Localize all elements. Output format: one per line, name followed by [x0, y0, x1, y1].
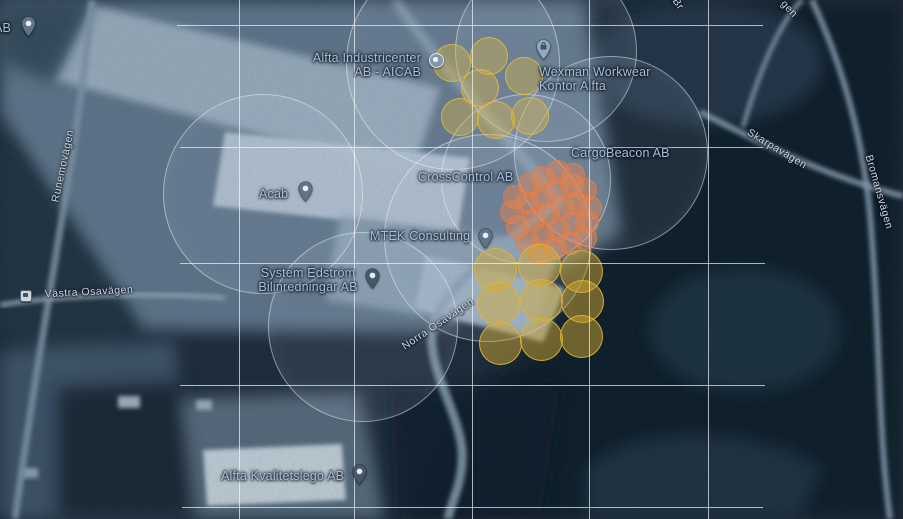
- place-label-system-edstrom[interactable]: System EdströmBilinredningar AB: [258, 267, 357, 294]
- place-label-line: System Edström: [258, 267, 357, 281]
- place-label-crosscontrol[interactable]: CrossControl AB: [418, 171, 513, 185]
- place-label-line: Kontor Alfta: [539, 80, 651, 94]
- place-label-alfta-kvalitetslego[interactable]: Alfta Kvalitetslego AB: [221, 470, 344, 484]
- place-label-mtek-consulting[interactable]: MTEK Consulting: [370, 230, 470, 244]
- label-layer: ABAlfta IndustricenterAB - AICABWexman W…: [0, 0, 903, 519]
- place-label-line: MTEK Consulting: [370, 230, 470, 244]
- place-label-line: Alfta Industricenter: [313, 52, 421, 66]
- road-label-skarpavagen: Skarpavägen: [745, 127, 809, 172]
- place-label-line: Bilinredningar AB: [258, 281, 357, 295]
- road-label-partial-gen: gen: [778, 0, 800, 20]
- place-label-alfta-industricenter[interactable]: Alfta IndustricenterAB - AICAB: [313, 52, 421, 79]
- place-label-line: AB - AICAB: [313, 66, 421, 80]
- place-label-line: CrossControl AB: [418, 171, 513, 185]
- place-label-line: AB: [0, 22, 11, 36]
- place-label-line: CargoBeacon AB: [571, 147, 670, 161]
- place-label-wexman-workwear[interactable]: Wexman WorkwearKontor Alfta: [539, 66, 651, 93]
- road-label-vastra-osavagen: Västra Osavägen: [44, 284, 133, 301]
- road-label-runemovagen: Runemovägen: [49, 129, 76, 204]
- place-label-line: Wexman Workwear: [539, 66, 651, 80]
- place-label-partial-ab[interactable]: AB: [0, 22, 11, 36]
- road-label-partial-br: Br: [670, 0, 686, 12]
- place-label-cargobeacon[interactable]: CargoBeacon AB: [571, 147, 670, 161]
- place-label-line: Acab: [259, 188, 288, 202]
- road-label-norra-osavagen: Norra Osavägen: [400, 296, 476, 353]
- map-canvas[interactable]: ABAlfta IndustricenterAB - AICABWexman W…: [0, 0, 903, 519]
- road-label-bromansvagen: Bromansvägen: [863, 154, 896, 231]
- place-label-acab[interactable]: Acab: [259, 188, 288, 202]
- place-label-line: Alfta Kvalitetslego AB: [221, 470, 344, 484]
